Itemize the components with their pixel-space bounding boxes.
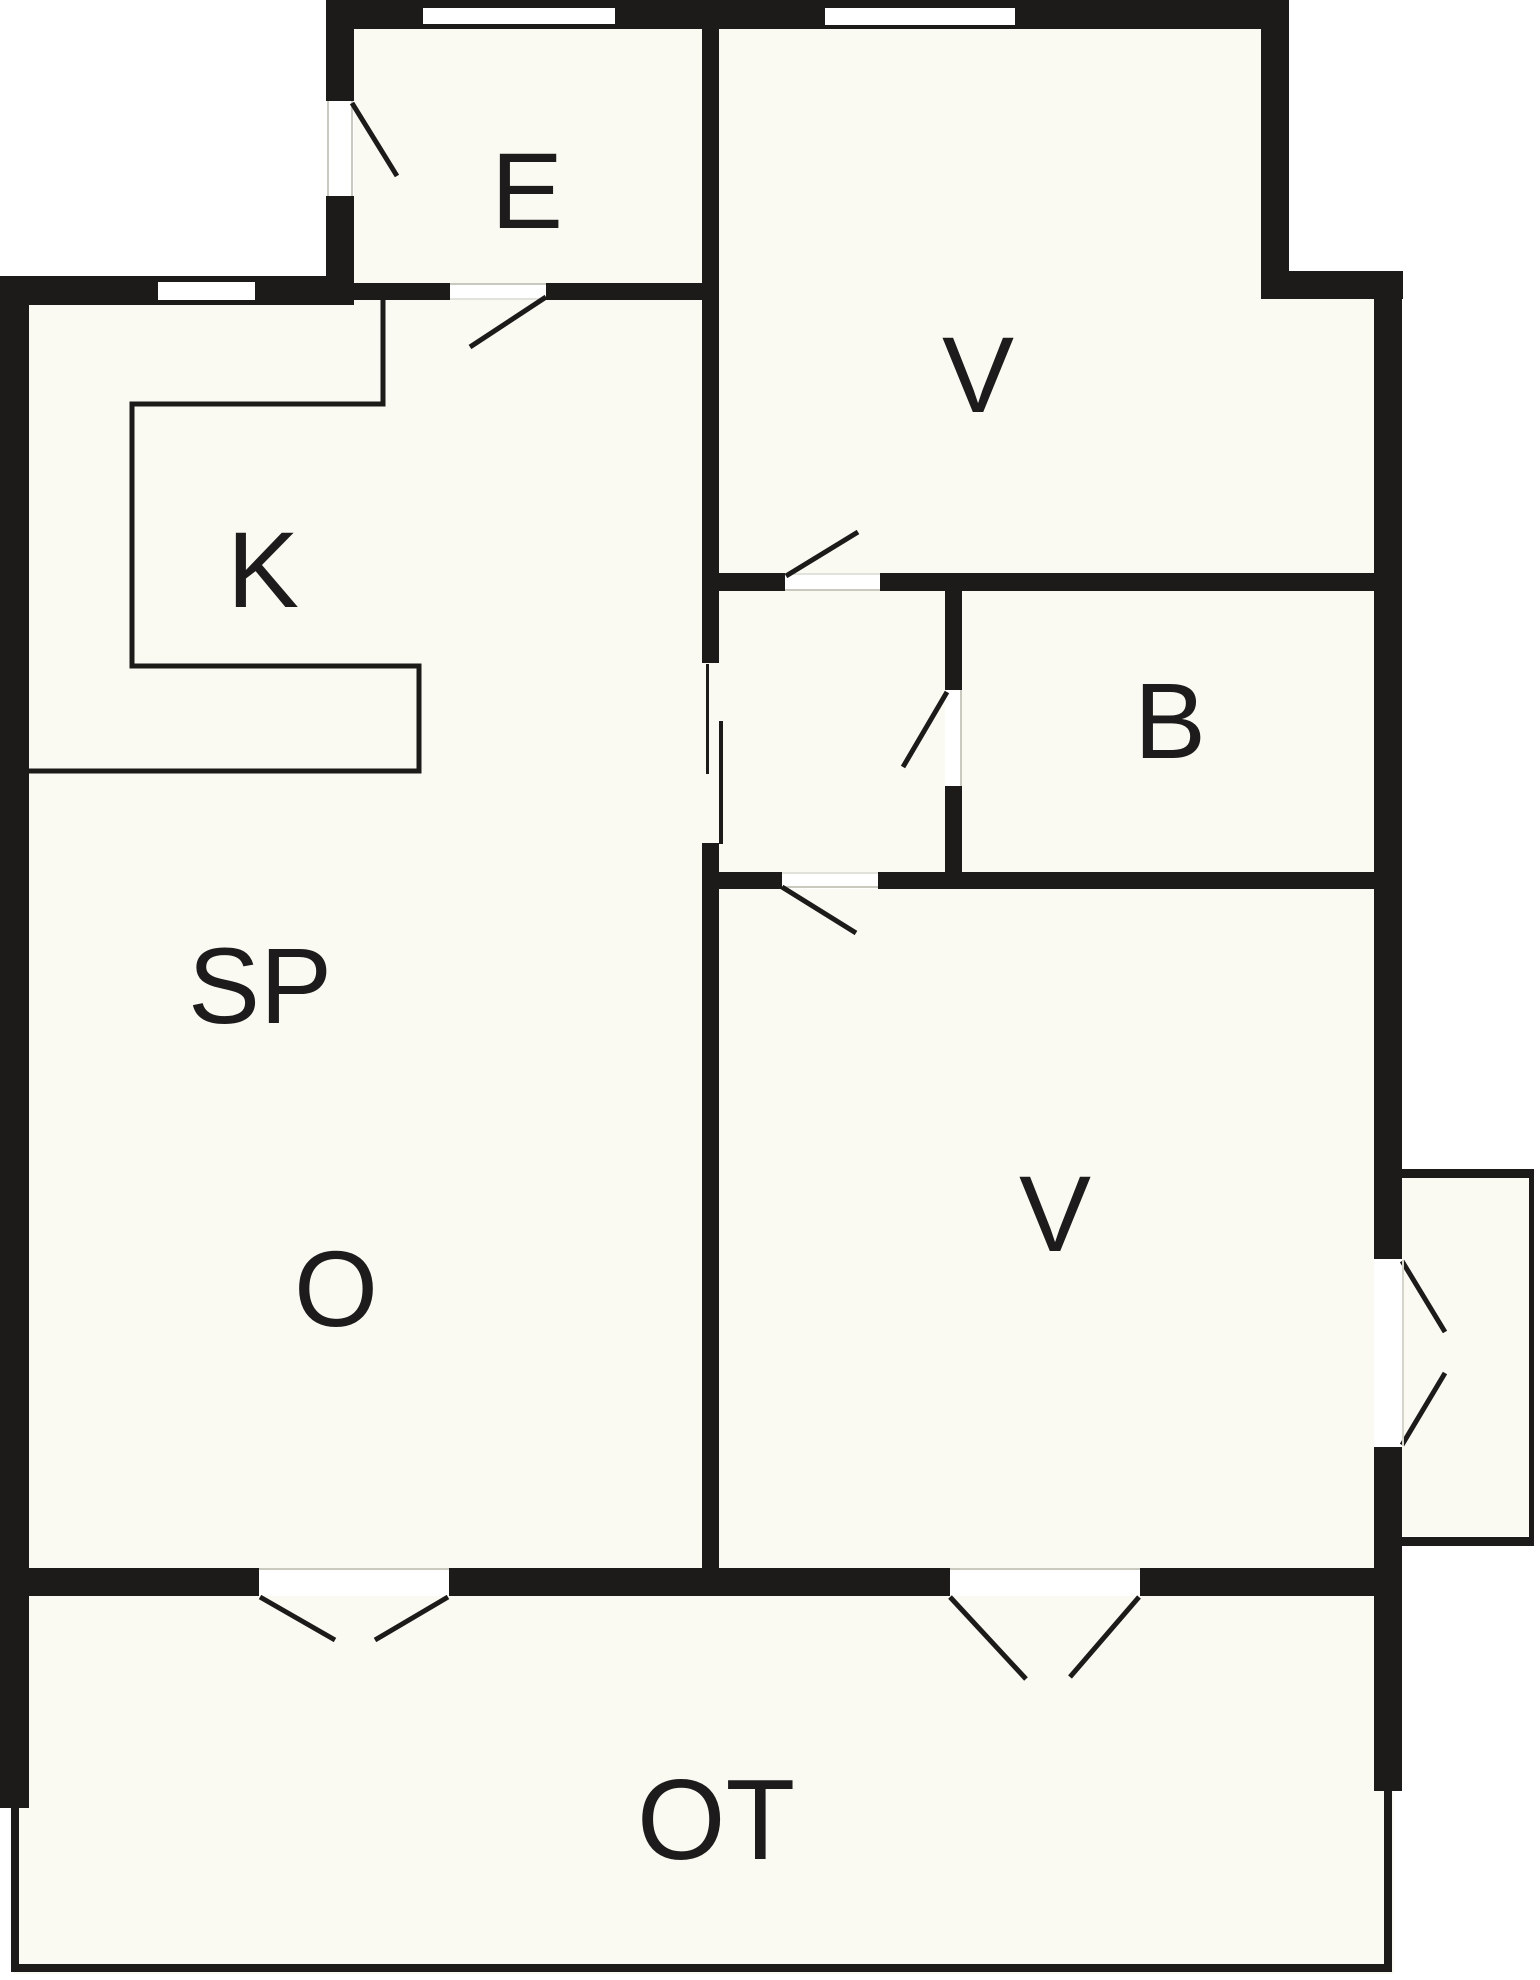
svg-text:E: E [491, 130, 563, 251]
svg-text:K: K [227, 509, 299, 630]
svg-text:B: B [1134, 660, 1206, 781]
svg-text:SP: SP [188, 925, 332, 1046]
svg-text:V: V [942, 314, 1014, 435]
svg-text:OT: OT [637, 1757, 795, 1884]
svg-text:O: O [294, 1228, 378, 1349]
svg-text:V: V [1019, 1153, 1091, 1274]
